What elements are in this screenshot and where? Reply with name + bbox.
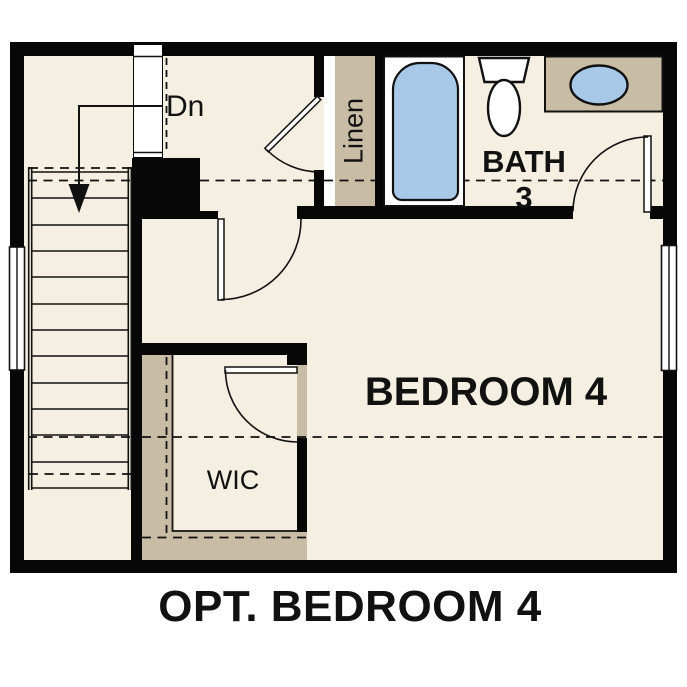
stair-treads xyxy=(32,172,128,488)
bath-number-label: 3 xyxy=(515,180,532,216)
bath-name-label: BATH xyxy=(482,144,566,180)
window-east xyxy=(662,246,677,371)
toilet-fixture xyxy=(479,58,529,136)
down-arrow-icon xyxy=(69,106,163,213)
wic-label: WIC xyxy=(207,465,259,496)
bathtub-fixture xyxy=(393,63,458,200)
plan-caption: OPT. BEDROOM 4 xyxy=(158,582,542,632)
stairs-down-label: Dn xyxy=(166,90,204,124)
door-wic xyxy=(225,367,297,442)
wic-shelf-edge xyxy=(173,355,298,531)
bedroom-label: BEDROOM 4 xyxy=(365,370,607,415)
stairs xyxy=(29,167,132,490)
door-bath xyxy=(573,136,651,212)
linen-closet-label: Linen xyxy=(339,98,370,164)
floorplan-canvas: Dn Linen BATH 3 BEDROOM 4 WIC OPT. BEDRO… xyxy=(0,0,687,687)
window-west xyxy=(10,247,25,370)
sink-fixture xyxy=(571,66,628,105)
door-hall xyxy=(265,96,321,172)
door-bedroom xyxy=(218,219,301,300)
